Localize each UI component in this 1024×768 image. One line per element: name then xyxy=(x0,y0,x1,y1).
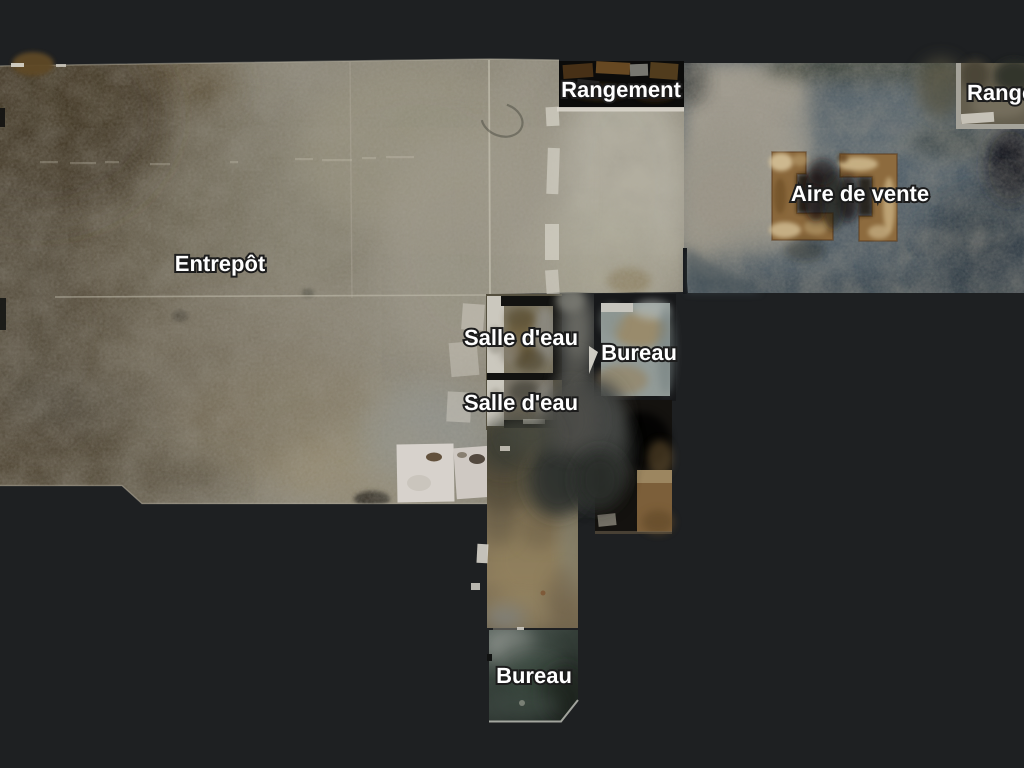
svg-text:Salle d'eau: Salle d'eau xyxy=(464,325,578,350)
svg-text:Rangement: Rangement xyxy=(561,77,681,102)
svg-text:Rangement: Rangement xyxy=(967,80,1024,105)
svg-text:Bureau: Bureau xyxy=(496,663,572,688)
svg-text:Entrepôt: Entrepôt xyxy=(175,251,266,276)
svg-text:Bureau: Bureau xyxy=(601,340,677,365)
svg-text:Aire de vente: Aire de vente xyxy=(791,181,929,206)
svg-text:Salle d'eau: Salle d'eau xyxy=(464,390,578,415)
